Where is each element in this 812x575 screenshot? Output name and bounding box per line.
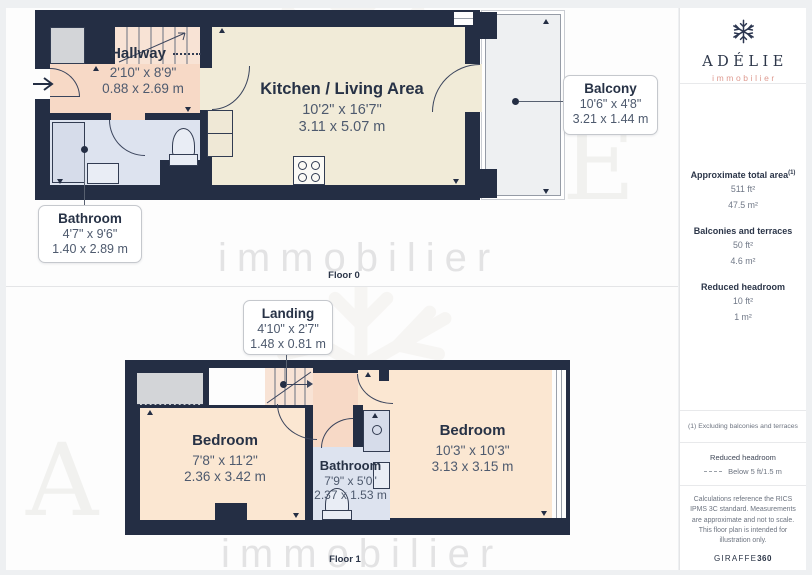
sink-icon [87,163,119,184]
balcony-dim-metric: 3.21 x 1.44 m [564,112,657,127]
bathroom-label: Bathroom [39,211,141,227]
floor-0-label: Floor 0 [264,270,424,281]
balconies-area-group: Balconies and terraces 50 ft² 4.6 m² [680,226,806,268]
kitchen-cabinet-icon [207,110,233,157]
bathroom-dim-metric: 2.37 x 1.53 m [297,489,404,503]
shower-icon [52,122,85,183]
measure-tick [293,513,299,518]
bedroom-left-dim-imperial: 7'8" x 11'2" [155,453,295,469]
bedroom-left-dim-metric: 2.36 x 3.42 m [155,469,295,485]
balcony-wall-stub [480,169,497,198]
floor-1-label: Floor 1 [265,554,425,565]
measure-tick [219,28,225,33]
stairs-direction-line [286,384,309,385]
measure-tick [57,179,63,184]
balconies-m: 4.6 m² [680,254,806,268]
hallway-dim-imperial: 2'10" x 8'9" [78,65,208,81]
stairs-icon [265,368,313,405]
bathroom-label: Bathroom [303,459,398,474]
reduced-label: Reduced headroom [680,282,806,292]
balcony-dim-imperial: 10'6" x 4'8" [564,97,657,112]
sidebar: ADÉLIE immobilier Approximate total area… [679,8,806,570]
disclaimer-block: Calculations reference the RICS IPMS 3C … [680,486,806,570]
landing-callout-leader [286,355,287,385]
dashed-line-icon [704,471,722,472]
landing-dim-metric: 1.48 x 0.81 m [244,337,332,352]
giraffe360-logo: GIRAFFE360 [689,553,797,565]
hallway-dotted-line [173,53,201,55]
landing-area [313,373,358,408]
measure-tick [185,107,191,112]
balcony-callout: Balcony 10'6" x 4'8" 3.21 x 1.44 m [563,75,658,135]
bathroom-callout-anchor-dot [81,146,88,153]
kitchen-label: Kitchen / Living Area [247,80,437,99]
measure-tick [543,19,549,24]
kitchen-dim-imperial: 10'2" x 16'7" [247,102,437,119]
brand-tagline: immobilier [680,73,806,83]
stove-icon [293,156,325,185]
bedroom-right-label: Bedroom [380,422,565,439]
bathroom-callout: Bathroom 4'7" x 9'6" 1.40 x 2.89 m [38,205,142,263]
legend-item: Below 5 ft/1.5 m [728,467,782,476]
bathroom-callout-leader [84,153,85,205]
closet-area [50,27,85,64]
bathroom-dim-imperial: 4'7" x 9'6" [39,227,141,242]
measure-tick [541,511,547,516]
landing-dim-imperial: 4'10" x 2'7" [244,322,332,337]
measure-tick [147,410,153,415]
balcony-callout-anchor-dot [512,98,519,105]
total-area-m: 47.5 m² [680,198,806,212]
disclaimer-text: Calculations reference the RICS IPMS 3C … [689,495,797,547]
legend-title: Reduced headroom [710,453,776,462]
shower-wall-post [353,405,363,453]
balconies-label: Balconies and terraces [680,226,806,236]
stairs-direction-arrow [307,380,313,388]
total-area-label: Approximate total area(1) [680,170,806,180]
measure-tick [543,189,549,194]
kitchen-dim-metric: 3.11 x 5.07 m [247,119,437,136]
toilet-tank-icon [322,510,352,520]
landing-callout: Landing 4'10" x 2'7" 1.48 x 0.81 m [243,300,333,355]
measure-tick [453,179,459,184]
reduced-headroom-group: Reduced headroom 10 ft² 1 m² [680,282,806,324]
bedroom-wall-jog [215,503,247,535]
floor-0-plan: Hallway 2'10" x 8'9" 0.88 x 2.69 m Kitch… [35,10,562,200]
bathroom-dim-imperial: 7'9" x 5'0" [297,475,404,489]
bedroom-left-label: Bedroom [155,432,295,449]
brand-snowflake-icon [731,19,756,44]
brand-name: ADÉLIE [680,54,806,70]
hallway-dim-metric: 0.88 x 2.69 m [78,81,208,97]
balcony-callout-leader [519,101,563,102]
balconies-ft: 50 ft² [680,238,806,252]
total-area-ft: 511 ft² [680,182,806,196]
floorplan-page: ADÉLIE immobilier [0,0,812,575]
total-area-group: Approximate total area(1) 511 ft² 47.5 m… [680,170,806,212]
bedroom-right-dim-imperial: 10'3" x 10'3" [380,443,565,459]
balcony-label: Balcony [564,81,657,97]
toilet-icon [172,128,195,157]
reduced-headroom-area [137,373,203,405]
measure-tick [365,372,371,377]
brand-block: ADÉLIE immobilier [680,8,806,84]
legend-row: Below 5 ft/1.5 m [704,467,782,476]
floor-1-section: ADÉLIE immobilier [6,287,678,570]
measure-tick [372,413,378,418]
balcony-wall-stub [480,12,497,39]
bathroom-door-opening [111,113,145,120]
floor-0-section: ADÉLIE immobilier [6,8,678,287]
reduced-m: 1 m² [680,310,806,324]
areas-summary: Approximate total area(1) 511 ft² 47.5 m… [680,84,806,411]
stairwell-void [209,368,265,405]
bedroom-right-dim-metric: 3.13 x 3.15 m [380,459,565,475]
landing-label: Landing [244,306,332,322]
bathroom-dim-metric: 1.40 x 2.89 m [39,242,141,257]
plans-panel: ADÉLIE immobilier [6,8,678,570]
legend-block: Reduced headroom Below 5 ft/1.5 m [680,443,806,486]
kitchen-window [454,12,473,25]
footnote: (1) Excluding balconies and terraces [680,411,806,443]
entrance-door-leaf [50,96,80,97]
floor-1-plan: Bedroom 7'8" x 11'2" 2.36 x 3.42 m Bedro… [125,360,570,535]
reduced-ft: 10 ft² [680,294,806,308]
toilet-tank-icon [169,154,198,166]
